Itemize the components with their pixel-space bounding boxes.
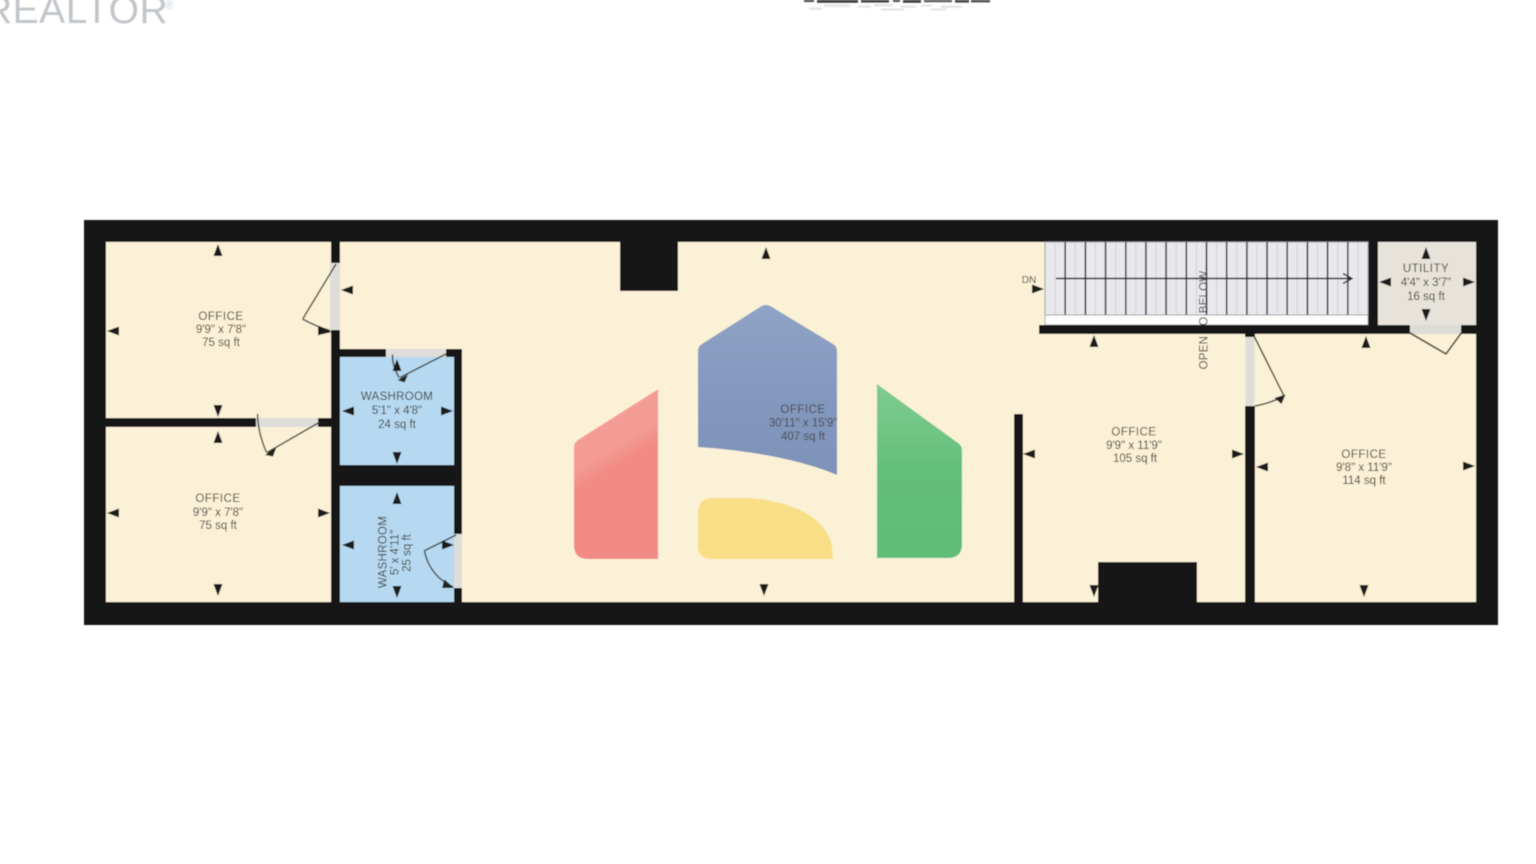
- svg-text:105 sq ft: 105 sq ft: [1113, 453, 1158, 465]
- svg-text:OFFICE: OFFICE: [780, 404, 825, 416]
- svg-text:WASHROOM: WASHROOM: [378, 516, 390, 588]
- svg-text:25 sq ft: 25 sq ft: [402, 533, 414, 572]
- svg-text:9'9" x 7'8": 9'9" x 7'8": [193, 507, 243, 519]
- svg-text:®: ®: [165, 0, 174, 12]
- svg-text:UTILITY: UTILITY: [1403, 263, 1449, 275]
- svg-text:OFFICE: OFFICE: [1111, 427, 1156, 439]
- svg-text:OFFICE: OFFICE: [195, 493, 240, 505]
- svg-text:16 sq ft: 16 sq ft: [1407, 291, 1446, 303]
- svg-text:5' x 4'11": 5' x 4'11": [390, 530, 402, 575]
- svg-text:407 sq ft: 407 sq ft: [781, 431, 826, 443]
- svg-text:75 sq ft: 75 sq ft: [199, 520, 238, 532]
- svg-text:REALTOR: REALTOR: [0, 0, 168, 32]
- svg-text:9'9" x 7'8": 9'9" x 7'8": [196, 324, 246, 336]
- svg-text:24 sq ft: 24 sq ft: [378, 419, 417, 431]
- svg-text:9'8" x 11'9": 9'8" x 11'9": [1336, 462, 1392, 474]
- svg-text:75 sq ft: 75 sq ft: [202, 337, 241, 349]
- svg-text:WASHROOM: WASHROOM: [361, 391, 433, 403]
- svg-text:4'4" x 3'7": 4'4" x 3'7": [1401, 277, 1451, 289]
- svg-text:DN: DN: [1022, 275, 1036, 286]
- svg-text:114 sq ft: 114 sq ft: [1342, 475, 1386, 487]
- svg-text:OFFICE: OFFICE: [198, 311, 243, 323]
- svg-text:5'1" x 4'8": 5'1" x 4'8": [372, 405, 422, 417]
- svg-text:OFFICE: OFFICE: [1341, 449, 1386, 461]
- svg-text:9'9" x 11'9": 9'9" x 11'9": [1106, 440, 1162, 452]
- svg-text:30'11" x 15'9": 30'11" x 15'9": [769, 418, 838, 430]
- svg-text:OPEN TO BELOW: OPEN TO BELOW: [1199, 271, 1211, 370]
